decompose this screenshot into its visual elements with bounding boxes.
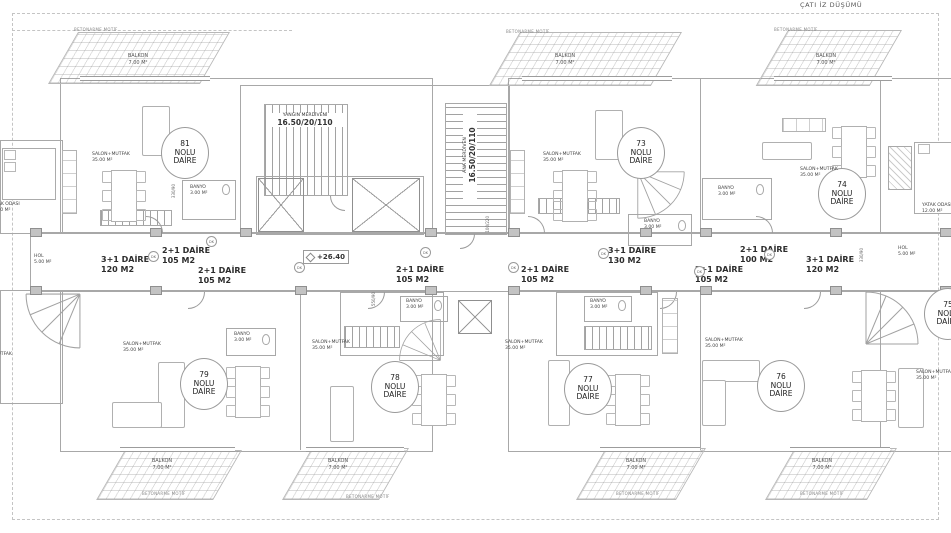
column bbox=[150, 286, 162, 295]
wall-77-76 bbox=[700, 291, 701, 450]
banyo-label: BANYO3.00 M² bbox=[190, 185, 208, 197]
salon-mutfak-label: SALON+MUTFAK35.00 M² bbox=[916, 370, 951, 382]
window bbox=[790, 447, 890, 452]
stair-treads-77 bbox=[584, 326, 652, 350]
dining-table bbox=[852, 364, 896, 428]
betonarme-motif-label: BETONARME MOTİF bbox=[506, 29, 550, 34]
toilet-icon bbox=[678, 220, 686, 231]
wall-73-74 bbox=[700, 79, 701, 232]
dimension-label: 100/220 bbox=[486, 216, 490, 233]
apartment-type-label: 2+1 DAİRE105 M2 bbox=[198, 266, 246, 285]
dimension-label: 330/90 bbox=[860, 248, 864, 262]
balcony-label: BALKON7.00 M² bbox=[606, 458, 666, 472]
banyo-label: BANYO3.00 M² bbox=[234, 332, 252, 344]
kitchen-counter bbox=[662, 298, 678, 354]
column bbox=[830, 228, 842, 237]
column bbox=[508, 286, 520, 295]
unit-circle-77: 77NOLUDAİRE bbox=[564, 363, 612, 415]
column bbox=[295, 286, 307, 295]
betonarme-motif-label: BETONARME MOTİF bbox=[74, 27, 118, 32]
sofa bbox=[702, 360, 760, 382]
dk-marker: DK bbox=[206, 236, 217, 247]
salon-mutfak-label: SALON+MUTFAK35.00 M² bbox=[92, 152, 130, 164]
banyo-label: BANYO3.00 M² bbox=[406, 299, 424, 311]
banyo-label: BANYO3.00 M² bbox=[718, 186, 736, 198]
plan-title: ÇATI İZ DÜŞÜMÜ bbox=[800, 1, 862, 9]
sofa bbox=[702, 380, 726, 426]
banyo-label: BANYO3.00 M² bbox=[590, 299, 608, 311]
dining-table bbox=[606, 368, 650, 432]
apartment-type-label: 3+1 DAİRE120 M2 bbox=[101, 255, 149, 274]
dining-table bbox=[553, 164, 597, 228]
column bbox=[30, 228, 42, 237]
unit-circle-79: 79NOLUDAİRE bbox=[180, 358, 228, 410]
window bbox=[80, 76, 210, 81]
unit-circle-73: 73NOLUDAİRE bbox=[617, 127, 665, 179]
main-stair-label: ANA MERDİVEN 16.50/20/110 bbox=[463, 110, 477, 200]
dimension-label: 330/90 bbox=[172, 184, 176, 198]
betonarme-motif-label: BETONARME MOTİF bbox=[616, 491, 660, 496]
toilet-icon bbox=[618, 300, 626, 311]
diamond-icon bbox=[306, 252, 316, 262]
floor-plan-canvas: ÇATI İZ DÜŞÜMÜ YANGIN MERDİVENİ 16.50/20… bbox=[0, 0, 951, 533]
pillow bbox=[918, 144, 930, 154]
balcony-label: BALKON7.00 M² bbox=[535, 53, 595, 67]
dining-table bbox=[412, 368, 456, 432]
light-shaft bbox=[458, 300, 492, 334]
elevator-shaft bbox=[352, 178, 420, 232]
toilet-icon bbox=[222, 184, 230, 195]
dk-marker: DK bbox=[694, 266, 705, 277]
dk-marker: DK bbox=[764, 249, 775, 260]
sofa bbox=[158, 362, 185, 428]
sofa bbox=[762, 142, 812, 160]
wall-bedroom-74 bbox=[880, 79, 881, 232]
apartment-type-label: 2+1 DAİRE105 M2 bbox=[396, 265, 444, 284]
column bbox=[425, 286, 437, 295]
betonarme-motif-label: BETONARME MOTİF bbox=[142, 491, 186, 496]
dk-marker: DK bbox=[148, 251, 159, 262]
column bbox=[240, 228, 252, 237]
hol-label: HOL5.00 M² bbox=[898, 246, 916, 258]
spiral-stair-left bbox=[24, 292, 82, 350]
salon-mutfak-label: SALON+MUTFAK35.00 M² bbox=[123, 342, 161, 354]
column bbox=[700, 286, 712, 295]
window bbox=[600, 447, 700, 452]
balcony-label: BALKON7.00 M² bbox=[796, 53, 856, 67]
pillow bbox=[4, 150, 16, 160]
balcony-label: BALKON7.00 M² bbox=[792, 458, 852, 472]
kitchen-counter bbox=[782, 118, 826, 132]
pillow bbox=[4, 162, 16, 172]
apartment-type-label: 2+1 DAİRE105 M2 bbox=[162, 246, 210, 265]
salon-mutfak-label: SALON+MUTFAK35.00 M² bbox=[800, 167, 838, 179]
apartment-type-label: 3+1 DAİRE130 M2 bbox=[608, 246, 656, 265]
unit-circle-76: 76NOLUDAİRE bbox=[757, 360, 805, 412]
dk-marker: DK bbox=[420, 247, 431, 258]
balcony-label: BALKON7.00 M² bbox=[308, 458, 368, 472]
salon-mutfak-label: SALON+MUTFAK35.00 M² bbox=[705, 338, 743, 350]
betonarme-motif-label: BETONARME MOTİF bbox=[774, 27, 818, 32]
banyo-label: BANYO3.00 M² bbox=[644, 219, 662, 231]
column bbox=[30, 286, 42, 295]
betonarme-motif-label: BETONARME MOTİF bbox=[346, 494, 390, 499]
sofa bbox=[330, 386, 354, 442]
dimension-label: 550/90 bbox=[372, 292, 376, 306]
spiral-stair-78 bbox=[398, 318, 442, 362]
fire-stair-label: YANGIN MERDİVENİ 16.50/20/110 bbox=[266, 113, 344, 127]
elevator-shaft bbox=[258, 178, 304, 232]
window bbox=[306, 447, 404, 452]
column bbox=[700, 228, 712, 237]
column bbox=[640, 286, 652, 295]
salon-mutfak-label: SALON+MUTFAK35.00 M² bbox=[312, 340, 350, 352]
toilet-icon bbox=[756, 184, 764, 195]
apartment-type-label: 3+1 DAİRE120 M2 bbox=[806, 255, 854, 274]
column bbox=[830, 286, 842, 295]
column bbox=[508, 228, 520, 237]
salon-mutfak-label: SALON+MUTFAK35.00 M² bbox=[0, 352, 12, 364]
toilet-icon bbox=[434, 300, 442, 311]
unit-circle-81: 81NOLUDAİRE bbox=[161, 127, 209, 179]
dk-marker: DK bbox=[508, 262, 519, 273]
column bbox=[425, 228, 437, 237]
yatak-odasi-label: YATAK ODASI12.00 M² bbox=[922, 203, 951, 215]
dk-marker: DK bbox=[598, 248, 609, 259]
yatak-odasi-label: YATAK ODASI12.00 M² bbox=[0, 202, 20, 214]
window bbox=[120, 447, 235, 452]
column bbox=[940, 228, 951, 237]
window bbox=[774, 76, 892, 81]
salon-mutfak-label: SALON+MUTFAK35.00 M² bbox=[543, 152, 581, 164]
wardrobe-hatch bbox=[888, 146, 912, 190]
elevation-marker: +26.40 bbox=[303, 250, 349, 264]
salon-mutfak-label: SALON+MUTFAK35.00 M² bbox=[505, 340, 543, 352]
hol-label: HOL5.00 M² bbox=[34, 254, 52, 266]
wall-79-78 bbox=[300, 291, 301, 450]
stair-treads-78 bbox=[344, 326, 400, 348]
window bbox=[522, 76, 672, 81]
roof-outline-step bbox=[12, 30, 292, 31]
dk-marker: DK bbox=[294, 262, 305, 273]
sofa bbox=[112, 402, 162, 428]
unit-circle-78: 78NOLUDAİRE bbox=[371, 361, 419, 413]
balcony-label: BALKON7.00 M² bbox=[132, 458, 192, 472]
kitchen-counter bbox=[62, 150, 77, 214]
dining-table bbox=[226, 360, 270, 424]
kitchen-counter bbox=[510, 150, 525, 214]
dining-table bbox=[102, 164, 146, 228]
apartment-type-label: 2+1 DAİRE105 M2 bbox=[521, 265, 569, 284]
betonarme-motif-label: BETONARME MOTİF bbox=[800, 491, 844, 496]
balcony-label: BALKON7.00 M² bbox=[108, 53, 168, 67]
spiral-stair-right bbox=[864, 290, 920, 346]
toilet-icon bbox=[262, 334, 270, 345]
